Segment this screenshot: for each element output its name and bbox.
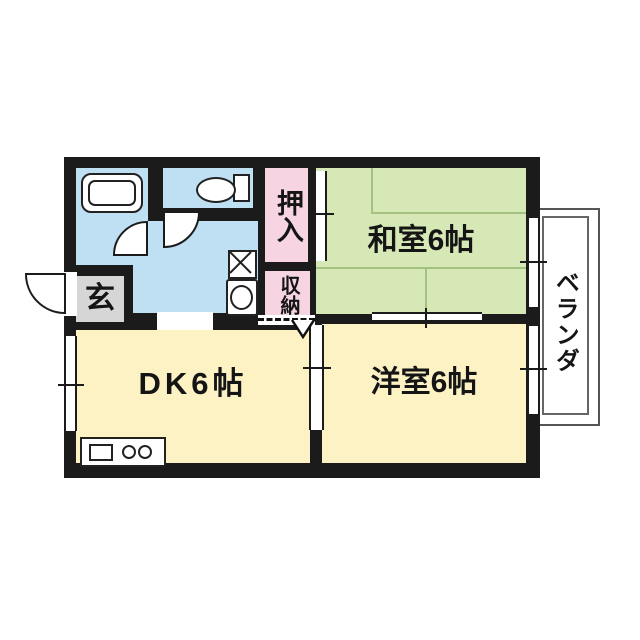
stove-burner-icon: [122, 445, 136, 459]
veranda-label: ベランダ: [544, 236, 584, 408]
floor-plan: ベランダ: [0, 0, 640, 640]
western-room-veranda-window: [527, 326, 540, 414]
window-tick: [520, 261, 547, 263]
japanese-western-sliding-door: [372, 312, 482, 322]
storage-label: 収納: [267, 272, 309, 317]
dining-kitchen-label: DK6帖: [76, 367, 310, 401]
tatami-line: [371, 168, 373, 214]
storage-dashed-line: [258, 318, 315, 321]
door-tick: [425, 308, 427, 328]
front-door-swing-icon: [26, 274, 65, 313]
tatami-line: [425, 267, 427, 314]
door-tick: [308, 213, 334, 215]
japanese-room-label: 和室6帖: [316, 224, 526, 257]
entrance-label: 玄: [76, 282, 124, 315]
western-room-label: 洋室6帖: [322, 366, 526, 399]
stove-burner-icon: [138, 445, 152, 459]
corridor-dk-opening: [157, 312, 213, 330]
closet-label: 押入: [266, 175, 308, 257]
tatami-line: [316, 267, 526, 269]
kitchen-sink-icon: [89, 444, 113, 461]
tatami-line: [371, 212, 526, 214]
washbasin-bowl-icon: [230, 285, 253, 310]
bathtub-inner-rim: [88, 180, 136, 206]
washing-machine-icon: [228, 250, 257, 279]
toilet-bowl-icon: [196, 177, 236, 203]
